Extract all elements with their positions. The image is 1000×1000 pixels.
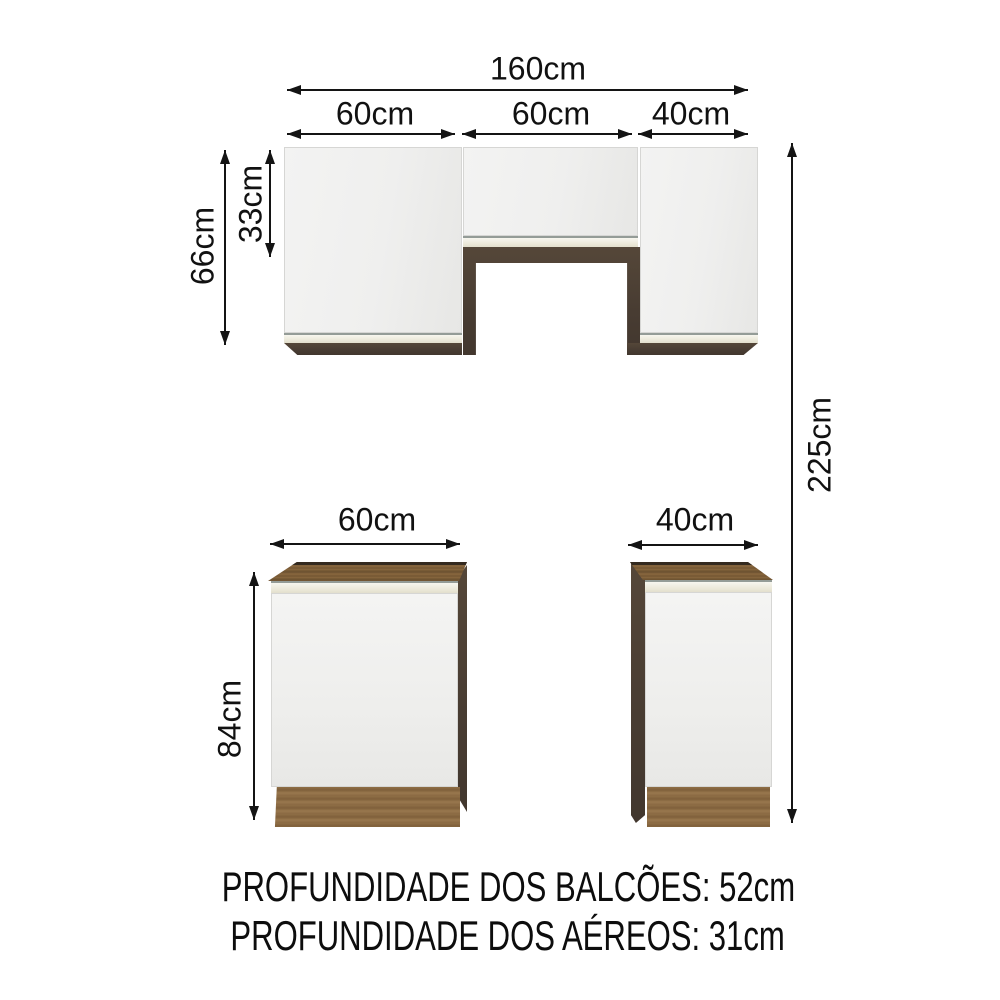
upper-middle-door <box>463 147 638 236</box>
upper-middle-trim <box>463 236 638 247</box>
upper-left-trim <box>284 333 462 343</box>
base-right-door <box>645 592 772 787</box>
total-height-arrow <box>791 143 793 823</box>
base-left-door <box>271 593 458 787</box>
upper-left-bottom-panel <box>284 343 462 355</box>
base-right-countertop <box>630 562 773 580</box>
base-right-trim <box>645 580 772 592</box>
base-height-label: 84cm <box>212 680 249 758</box>
base-left-width-label: 60cm <box>338 502 416 539</box>
base-right-plinth <box>647 787 770 827</box>
upper-right-width-label: 40cm <box>652 96 730 133</box>
upper-right-door <box>640 147 758 333</box>
upper-middle-width-arrow <box>462 133 632 135</box>
base-left-width-arrow <box>270 543 460 545</box>
base-height-arrow <box>253 572 255 820</box>
total-width-arrow <box>287 89 748 91</box>
upper-right-width-arrow <box>638 133 748 135</box>
middle-door-height-label: 33cm <box>233 165 270 243</box>
upper-left-width-label: 60cm <box>336 96 414 133</box>
base-left-countertop <box>268 562 467 581</box>
base-right-width-arrow <box>628 544 758 546</box>
base-right-width-label: 40cm <box>656 502 734 539</box>
base-left-side-panel <box>458 565 467 812</box>
base-left-plinth <box>274 787 460 827</box>
upper-right-trim <box>640 333 758 343</box>
middle-door-height-arrow <box>269 150 271 257</box>
kitchen-dimension-diagram: 160cm 60cm 60cm 40cm 66cm 33cm 225cm 60c… <box>0 0 1000 1000</box>
total-height-label: 225cm <box>802 397 839 493</box>
total-width-label: 160cm <box>490 51 586 88</box>
upper-left-width-arrow <box>287 133 455 135</box>
base-right-side-panel <box>631 562 645 823</box>
upper-left-door <box>284 147 462 333</box>
niche-frame <box>463 247 640 355</box>
base-left-trim <box>271 581 458 593</box>
upper-height-arrow <box>224 150 226 345</box>
upper-middle-width-label: 60cm <box>512 96 590 133</box>
upper-right-bottom-panel <box>627 343 758 355</box>
depth-note-aereos: PROFUNDIDADE DOS AÉREOS: 31cm <box>8 912 1000 960</box>
upper-height-label: 66cm <box>185 207 222 285</box>
depth-note-balcoes: PROFUNDIDADE DOS BALCÕES: 52cm <box>8 863 1000 911</box>
